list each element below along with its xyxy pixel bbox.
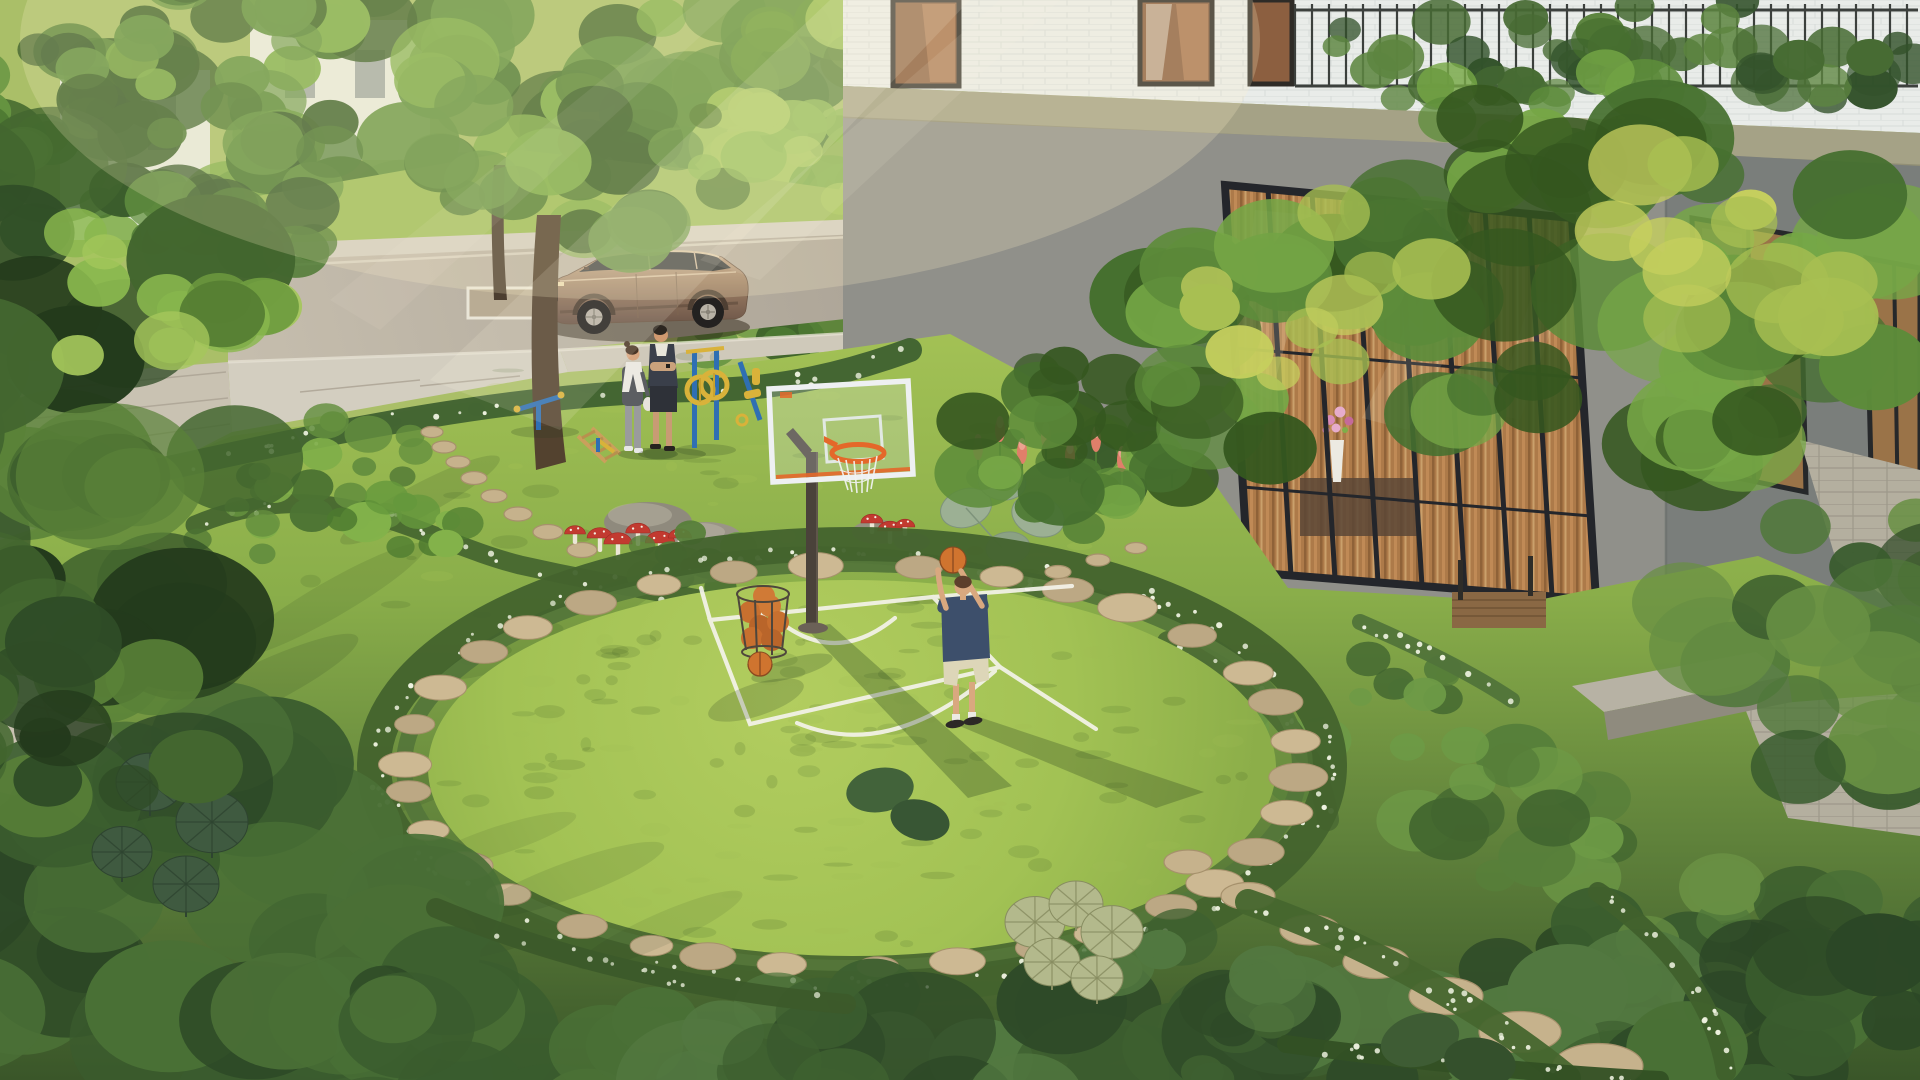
grass-speckle xyxy=(548,760,585,771)
stepping-stone xyxy=(710,561,757,583)
flower-dot xyxy=(681,983,685,987)
foliage-blob xyxy=(1350,52,1398,89)
foliage-blob xyxy=(303,403,348,438)
flower-dot xyxy=(600,393,605,398)
grass-speckle xyxy=(715,851,741,859)
flower-dot xyxy=(1621,908,1626,913)
flower-dot xyxy=(1357,1055,1362,1060)
stepping-stone xyxy=(379,752,432,777)
grass-speckle xyxy=(766,775,777,788)
foliage-blob xyxy=(1346,642,1390,677)
grass-speckle xyxy=(522,485,559,499)
flower-dot xyxy=(1465,671,1471,677)
flower-dot xyxy=(673,980,677,984)
flower-dot xyxy=(1338,935,1344,941)
flower-dot xyxy=(796,379,801,384)
flower-dot xyxy=(572,947,576,951)
flower-dot xyxy=(898,346,904,352)
grass-speckle xyxy=(670,696,689,706)
flower-dot xyxy=(1427,645,1432,650)
flower-dot xyxy=(1702,1017,1707,1022)
flower-dot xyxy=(1557,1065,1562,1070)
grass-speckle xyxy=(491,535,528,549)
stepping-stone xyxy=(1098,593,1158,622)
foliage-blob xyxy=(1751,730,1846,804)
flower-dot xyxy=(1216,622,1222,628)
flower-dot xyxy=(1245,870,1250,875)
foliage-blob xyxy=(978,456,1021,490)
stepping-stone xyxy=(1271,729,1320,753)
flower-dot xyxy=(1451,998,1456,1003)
grass-speckle xyxy=(875,930,898,941)
grass-speckle xyxy=(1143,738,1158,746)
flower-dot xyxy=(508,615,512,619)
flower-dot xyxy=(587,956,593,962)
stepping-stone xyxy=(461,472,487,485)
flower-dot xyxy=(1243,644,1249,650)
flower-dot xyxy=(667,982,671,986)
stepping-stone xyxy=(929,948,985,975)
flower-dot xyxy=(1416,650,1420,654)
flower-dot xyxy=(790,550,794,554)
grass-speckle xyxy=(683,636,702,645)
grass-speckle xyxy=(1081,646,1114,658)
foliage-blob xyxy=(1712,386,1801,456)
flower-dot xyxy=(1610,1076,1614,1080)
flower-dot xyxy=(559,595,562,598)
grass-speckle xyxy=(421,571,453,581)
foliage-blob xyxy=(149,730,243,804)
grass-speckle xyxy=(600,745,635,752)
grass-speckle xyxy=(823,863,853,867)
flower-dot xyxy=(1691,991,1694,994)
mushroom-dot xyxy=(577,527,579,529)
flower-dot xyxy=(1446,1003,1449,1006)
stepping-stone xyxy=(421,427,443,438)
grass-speckle xyxy=(468,745,489,750)
stepping-stone xyxy=(481,490,507,503)
flower-dot xyxy=(795,372,801,378)
flower-dot xyxy=(1263,910,1269,916)
mushroom-dot xyxy=(603,530,605,532)
flower-dot xyxy=(1328,740,1331,743)
flower-dot xyxy=(1350,1048,1354,1052)
flower-dot xyxy=(458,411,461,414)
flower-dot xyxy=(557,934,562,939)
flower-dot xyxy=(1354,935,1360,941)
courtyard-rendering xyxy=(0,0,1920,1080)
foliage-blob xyxy=(393,493,417,512)
flower-dot xyxy=(831,547,835,551)
grass-speckle xyxy=(871,862,901,869)
flower-dot xyxy=(1669,962,1675,968)
flower-dot xyxy=(1453,1008,1457,1012)
flower-dot xyxy=(814,992,820,998)
backboard-logo xyxy=(780,392,792,398)
flower-dot xyxy=(1316,791,1321,796)
grass-speckle xyxy=(686,877,710,883)
grass-speckle xyxy=(1216,775,1231,784)
grass-speckle xyxy=(728,824,752,829)
grass-speckle xyxy=(1092,860,1127,872)
flower-dot xyxy=(385,727,391,733)
stepping-stone xyxy=(980,566,1023,587)
foliage-blob xyxy=(936,393,1009,450)
grass-speckle xyxy=(622,897,652,907)
grass-speckle xyxy=(1008,845,1039,858)
mushroom-dot xyxy=(866,518,868,520)
grass-speckle xyxy=(795,639,805,646)
grass-speckle xyxy=(522,676,556,688)
flower-dot xyxy=(1609,899,1614,904)
grass-speckle xyxy=(713,478,739,489)
foliage-blob xyxy=(290,498,334,532)
flower-dot xyxy=(1335,945,1341,951)
foliage-blob xyxy=(1773,40,1825,80)
flower-dot xyxy=(1715,1030,1720,1035)
flower-dot xyxy=(1440,655,1446,661)
flower-dot xyxy=(641,969,644,972)
foliage-blob xyxy=(249,544,275,565)
grass-speckle xyxy=(1235,772,1247,781)
grass-speckle xyxy=(524,763,546,771)
foliage-blob xyxy=(1225,962,1316,1033)
mushroom-dot xyxy=(632,527,634,529)
flower-dot xyxy=(856,373,862,379)
flower-dot xyxy=(1362,625,1366,629)
flower-dot xyxy=(483,411,487,415)
foliage-blob xyxy=(1483,743,1540,787)
flower-dot xyxy=(494,934,499,939)
boy-hair xyxy=(954,576,971,588)
grass-speckle xyxy=(920,872,954,879)
foliage-blob xyxy=(1495,342,1571,401)
foliage-blob xyxy=(1180,284,1240,331)
flower-dot xyxy=(1375,634,1378,637)
flower-dot xyxy=(1508,698,1514,704)
grass-speckle xyxy=(515,849,535,853)
flower-dot xyxy=(373,742,377,746)
boy-leg xyxy=(953,684,959,716)
foliage-blob xyxy=(1754,285,1844,355)
grass-speckle xyxy=(652,887,672,894)
grass-speckle xyxy=(887,602,925,614)
foliage-blob xyxy=(345,416,393,453)
mushroom-dot xyxy=(611,538,613,540)
foliage-blob xyxy=(1323,35,1351,57)
mushroom-dot xyxy=(663,535,665,537)
stepping-stone xyxy=(1043,578,1094,603)
flower-dot xyxy=(498,623,504,629)
flower-dot xyxy=(1467,997,1473,1003)
grass-speckle xyxy=(640,823,670,836)
foliage-blob xyxy=(14,690,112,766)
flower-dot xyxy=(1405,644,1410,649)
stepping-stone xyxy=(637,574,681,595)
grass-speckle xyxy=(964,865,981,870)
flower-dot xyxy=(664,567,669,572)
flower-dot xyxy=(406,696,409,699)
foliage-blob xyxy=(16,403,205,550)
stepping-stone xyxy=(1249,689,1303,715)
grass-speckle xyxy=(608,662,631,670)
flower-dot xyxy=(1448,988,1454,994)
foliage-blob xyxy=(1575,201,1653,262)
flower-dot xyxy=(1724,1048,1730,1054)
flower-dot xyxy=(471,633,474,636)
stepping-stone xyxy=(1125,543,1147,554)
stepping-stone xyxy=(395,715,435,734)
stepping-stone xyxy=(460,641,508,664)
stepping-stone xyxy=(896,556,943,579)
flower-dot xyxy=(1397,632,1403,638)
boy-leg xyxy=(969,682,975,712)
flower-dot xyxy=(1546,1067,1551,1072)
flower-dot xyxy=(488,551,494,557)
flower-dot xyxy=(1353,1043,1359,1049)
pole-base xyxy=(798,623,828,634)
foliage-blob xyxy=(1390,733,1425,760)
foliage-blob xyxy=(1142,361,1200,406)
grass-speckle xyxy=(960,829,982,839)
foliage-blob xyxy=(1793,150,1907,239)
stepping-stone xyxy=(414,675,466,700)
foliage-blob xyxy=(1846,39,1893,76)
stepping-stone xyxy=(1261,800,1313,825)
foliage-blob xyxy=(350,976,437,1044)
mushroom-dot xyxy=(884,525,886,527)
grass-speckle xyxy=(1113,726,1140,733)
flower-dot xyxy=(1611,896,1614,899)
grass-speckle xyxy=(1052,651,1073,660)
flower-dot xyxy=(1328,735,1332,739)
flower-dot xyxy=(1149,588,1155,594)
mushroom-dot xyxy=(570,529,572,531)
foliage-blob xyxy=(386,536,414,558)
grass-speckle xyxy=(860,744,894,749)
flower-dot xyxy=(1317,825,1320,828)
flower-dot xyxy=(421,531,425,535)
mushroom-dot xyxy=(893,524,895,526)
stepping-stone xyxy=(504,507,532,521)
flower-dot xyxy=(1426,987,1432,993)
foliage-blob xyxy=(1447,154,1591,267)
foliage-blob xyxy=(1648,136,1719,192)
flower-dot xyxy=(1322,805,1327,810)
grass-speckle xyxy=(734,805,755,817)
flower-dot xyxy=(1714,1011,1719,1016)
flower-dot xyxy=(1526,1045,1531,1050)
grass-speckle xyxy=(798,765,821,777)
grass-speckle xyxy=(708,502,719,506)
flower-dot xyxy=(397,803,401,807)
flower-dot xyxy=(1375,1048,1380,1053)
foliage-blob xyxy=(1311,339,1370,385)
flower-dot xyxy=(1284,834,1288,838)
grass-speckle xyxy=(1073,732,1089,742)
foliage-blob xyxy=(1223,412,1316,485)
grass-speckle xyxy=(1146,841,1181,850)
grass-speckle xyxy=(752,919,787,929)
foliage-blob xyxy=(82,234,127,269)
flower-dot xyxy=(1487,682,1491,686)
grass-speckle xyxy=(1014,724,1032,729)
flower-dot xyxy=(975,973,979,977)
loose-basketball xyxy=(748,652,772,676)
flower-dot xyxy=(1512,1046,1516,1050)
grass-speckle xyxy=(631,706,660,715)
grass-speckle xyxy=(513,731,529,737)
flower-dot xyxy=(812,377,817,382)
mushroom-dot xyxy=(653,537,655,539)
grass-speckle xyxy=(508,463,523,469)
flower-dot xyxy=(1193,610,1197,614)
flower-dot xyxy=(550,601,556,607)
foliage-blob xyxy=(1441,727,1489,764)
flower-dot xyxy=(1331,777,1335,781)
flower-dot xyxy=(525,918,530,923)
grass-speckle xyxy=(581,737,592,751)
flower-dot xyxy=(205,522,209,526)
flower-dot xyxy=(408,683,413,688)
grass-speckle xyxy=(993,802,1006,806)
grass-speckle xyxy=(546,772,572,779)
grass-speckle xyxy=(512,711,535,716)
stepping-stone xyxy=(432,441,456,453)
crossed-arms xyxy=(650,362,676,371)
foliage-blob xyxy=(246,510,280,537)
flower-dot xyxy=(1254,910,1257,913)
flower-dot xyxy=(433,414,439,420)
flower-dot xyxy=(391,412,394,415)
towel xyxy=(655,344,668,356)
mushroom-stem xyxy=(598,536,602,552)
grass-speckle xyxy=(666,461,677,471)
stepping-stone xyxy=(1045,566,1071,579)
flower-dot xyxy=(1363,942,1366,945)
flower-dot xyxy=(463,544,468,549)
flower-dot xyxy=(1166,602,1171,607)
stepping-stone xyxy=(446,456,470,468)
flower-dot xyxy=(611,962,615,966)
flower-dot xyxy=(672,965,676,969)
stepping-stone xyxy=(1223,661,1273,685)
foliage-blob xyxy=(1392,238,1470,299)
flower-dot xyxy=(1322,1052,1328,1058)
flower-dot xyxy=(651,970,655,974)
foliage-blob xyxy=(1517,789,1590,846)
flower-dot xyxy=(1441,1058,1445,1062)
flower-dot xyxy=(1382,955,1385,958)
flower-dot xyxy=(1383,634,1388,639)
grass-speckle xyxy=(735,742,746,755)
grass-speckle xyxy=(462,794,489,807)
grass-speckle xyxy=(917,927,943,934)
foliage-blob xyxy=(428,530,463,558)
grass-speckle xyxy=(824,847,848,852)
flower-dot xyxy=(376,729,380,733)
grass-speckle xyxy=(1016,803,1031,811)
grass-speckle xyxy=(700,470,720,475)
foliage-blob xyxy=(1759,1001,1856,1077)
foliage-blob xyxy=(327,508,357,532)
grass-speckle xyxy=(636,634,656,645)
flower-dot xyxy=(1707,1027,1711,1031)
foliage-blob xyxy=(1475,860,1515,892)
grass-speckle xyxy=(911,622,946,629)
sideboard xyxy=(1300,478,1418,536)
foliage-blob xyxy=(99,765,159,812)
grass-speckle xyxy=(1163,697,1186,706)
flower-dot xyxy=(1238,651,1241,654)
grass-speckle xyxy=(828,818,864,826)
flower-dot xyxy=(1213,659,1217,663)
grass-speckle xyxy=(980,810,1003,818)
stepping-stone xyxy=(1168,624,1217,647)
flower-dot xyxy=(698,558,703,563)
foliage-blob xyxy=(1683,34,1724,66)
grass-speckle xyxy=(606,675,618,685)
grass-speckle xyxy=(1225,719,1260,725)
flower-dot xyxy=(1323,724,1329,730)
rendering-stage xyxy=(0,0,1920,1080)
foliage-blob xyxy=(300,438,342,471)
grass-speckle xyxy=(899,649,920,653)
foliage-blob xyxy=(1436,85,1523,153)
foliage-blob xyxy=(52,335,104,376)
flower-dot xyxy=(494,559,498,563)
flower-dot xyxy=(655,961,658,964)
flower-dot xyxy=(1505,1021,1509,1025)
mushroom-dot xyxy=(641,526,643,528)
stepping-stone xyxy=(1164,850,1212,874)
grass-speckle xyxy=(596,634,613,647)
grass-speckle xyxy=(1028,858,1052,872)
stepping-stone xyxy=(680,943,736,970)
foliage-blob xyxy=(1297,185,1370,242)
foliage-blob xyxy=(1009,396,1078,450)
flower-dot xyxy=(916,551,921,556)
stepping-stone xyxy=(503,616,552,640)
flower-dot xyxy=(538,573,542,577)
flower-dot xyxy=(522,941,527,946)
grass-speckle xyxy=(437,780,462,786)
foliage-blob xyxy=(1711,196,1777,248)
watch xyxy=(666,364,670,368)
flower-dot xyxy=(1338,927,1343,932)
grass-speckle xyxy=(780,726,800,734)
grass-speckle xyxy=(1212,734,1244,747)
suv-rear-wheel xyxy=(692,296,724,328)
grass-speckle xyxy=(763,874,798,880)
foliage-blob xyxy=(352,457,376,476)
grass-speckle xyxy=(1119,692,1130,704)
stepping-stone xyxy=(1086,554,1110,566)
flower-dot xyxy=(381,774,384,777)
grass-speckle xyxy=(1199,748,1216,757)
stepping-stone xyxy=(533,525,563,540)
grass-speckle xyxy=(1015,758,1039,768)
foliage-blob xyxy=(399,438,433,465)
grass-speckle xyxy=(790,744,816,756)
mushroom-dot xyxy=(621,536,623,538)
flower-dot xyxy=(1461,990,1467,996)
foliage-blob xyxy=(1256,357,1300,391)
flower-dot xyxy=(1324,925,1329,930)
grass-speckle xyxy=(710,758,724,768)
foliage-blob xyxy=(1344,252,1401,296)
foliage-blob xyxy=(1766,585,1870,666)
